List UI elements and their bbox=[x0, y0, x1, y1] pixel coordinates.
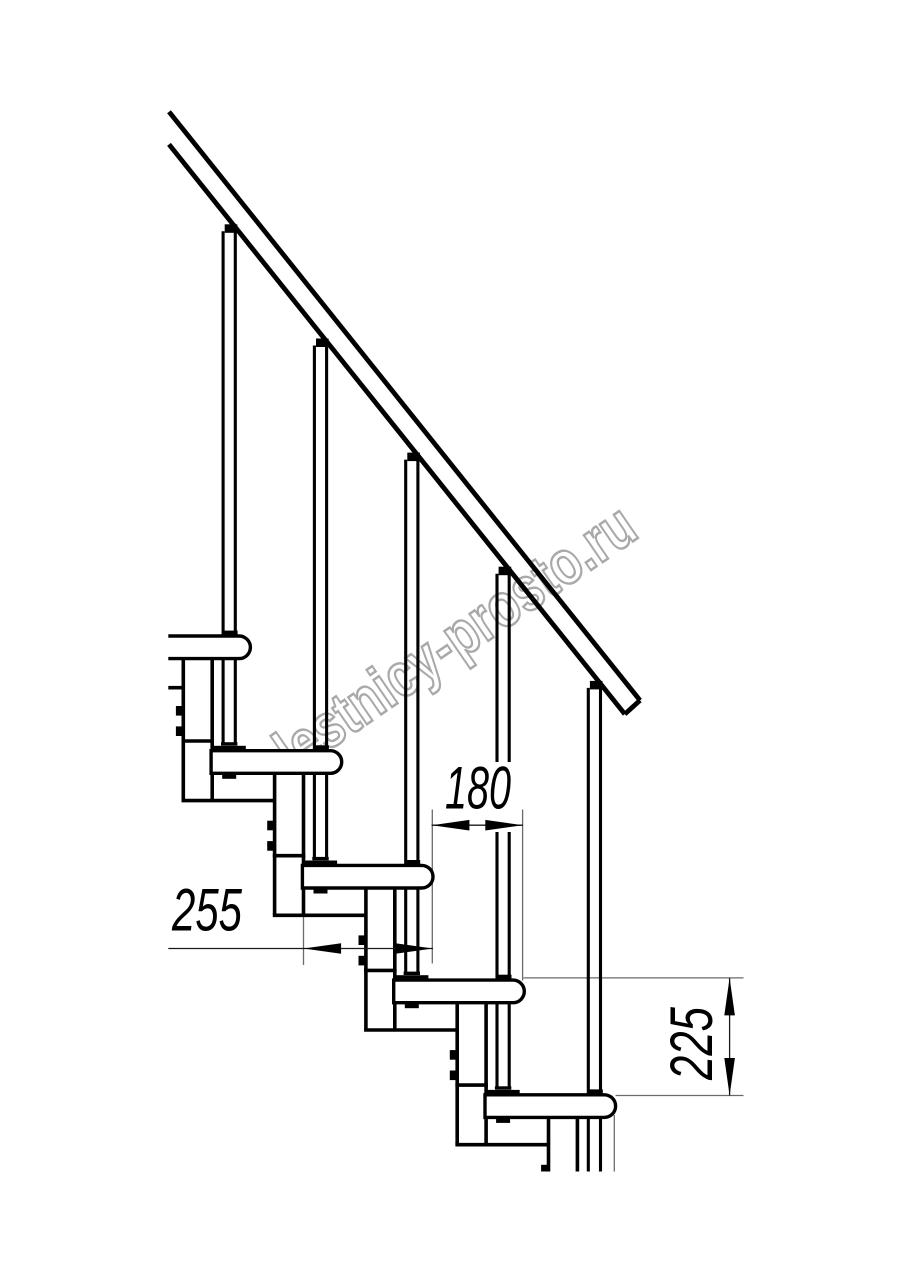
svg-text:255: 255 bbox=[171, 877, 242, 944]
svg-text:225: 225 bbox=[658, 1007, 725, 1081]
svg-text:180: 180 bbox=[445, 755, 511, 822]
